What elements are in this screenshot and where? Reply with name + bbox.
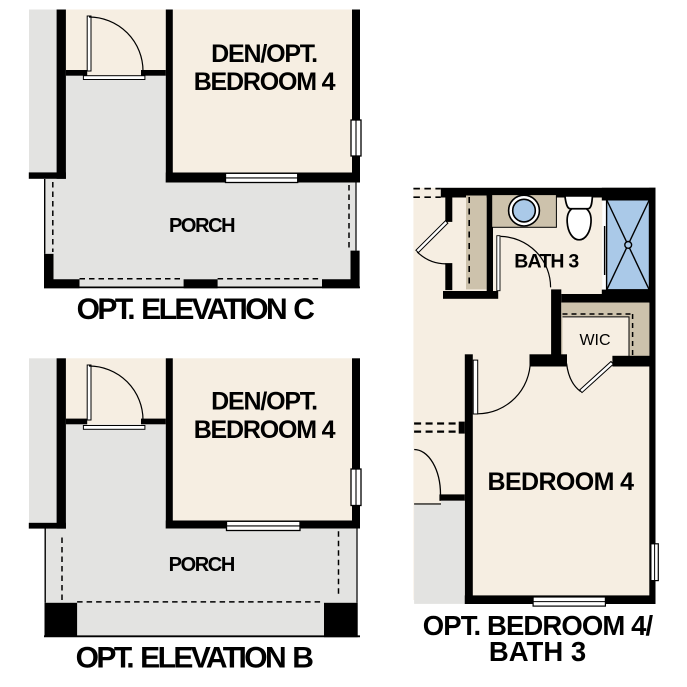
svg-text:DEN/OPT.: DEN/OPT. xyxy=(211,40,317,68)
svg-text:WIC: WIC xyxy=(579,332,610,349)
svg-text:DEN/OPT.: DEN/OPT. xyxy=(211,388,317,416)
svg-text:BEDROOM 4: BEDROOM 4 xyxy=(194,68,336,96)
svg-text:PORCH: PORCH xyxy=(169,215,235,237)
svg-text:PORCH: PORCH xyxy=(169,554,235,576)
svg-text:BATH 3: BATH 3 xyxy=(489,636,586,667)
svg-text:BATH 3: BATH 3 xyxy=(514,250,579,272)
svg-text:OPT. ELEVATION C: OPT. ELEVATION C xyxy=(77,293,315,326)
svg-text:OPT. ELEVATION B: OPT. ELEVATION B xyxy=(76,642,314,675)
svg-text:BEDROOM 4: BEDROOM 4 xyxy=(487,468,634,496)
svg-text:BEDROOM 4: BEDROOM 4 xyxy=(194,416,336,444)
